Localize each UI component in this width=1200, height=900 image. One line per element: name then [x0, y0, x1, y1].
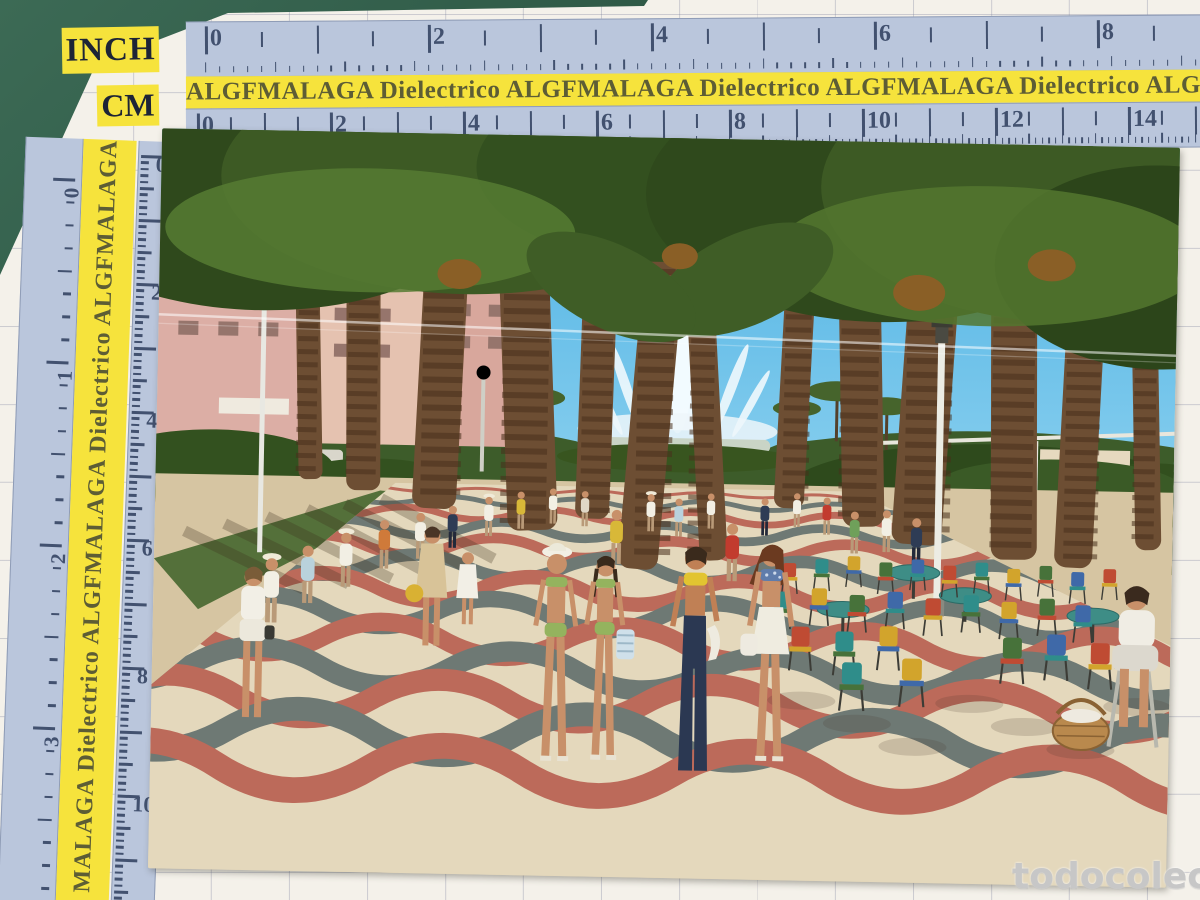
- ruler-number: 10: [867, 109, 891, 133]
- ruler-number: 2: [433, 25, 445, 49]
- ruler-number: 14: [1133, 107, 1157, 131]
- ruler-number: 1: [54, 370, 75, 381]
- ruler-number: 2: [47, 553, 68, 564]
- ruler-number: 4: [656, 23, 668, 47]
- cm-ruler-label: CM: [97, 84, 160, 126]
- ruler-number: 6: [601, 111, 613, 135]
- scanned-postcard-listing: INCH CM 02468 ALGFMALAGA Dielectrico ALG…: [0, 0, 1200, 900]
- postcard-photo: [148, 128, 1180, 887]
- ruler-number: 0: [210, 26, 222, 50]
- ruler-number: 8: [1102, 20, 1114, 44]
- ruler-number: 4: [468, 112, 480, 136]
- ruler-number: 8: [734, 110, 746, 134]
- ruler-number: 0: [61, 187, 82, 198]
- ruler-number: 6: [879, 22, 891, 46]
- inch-ruler-label: INCH: [62, 26, 160, 74]
- promenade-scene: [148, 128, 1180, 887]
- ruler-number: 3: [41, 736, 62, 747]
- ruler-number: 6: [141, 537, 153, 559]
- ruler-number: 8: [137, 665, 149, 687]
- todocoleccion-watermark: todocoleccion: [1012, 856, 1200, 897]
- ruler-number: 12: [1000, 108, 1024, 132]
- top-inch-ruler: 02468: [186, 14, 1200, 77]
